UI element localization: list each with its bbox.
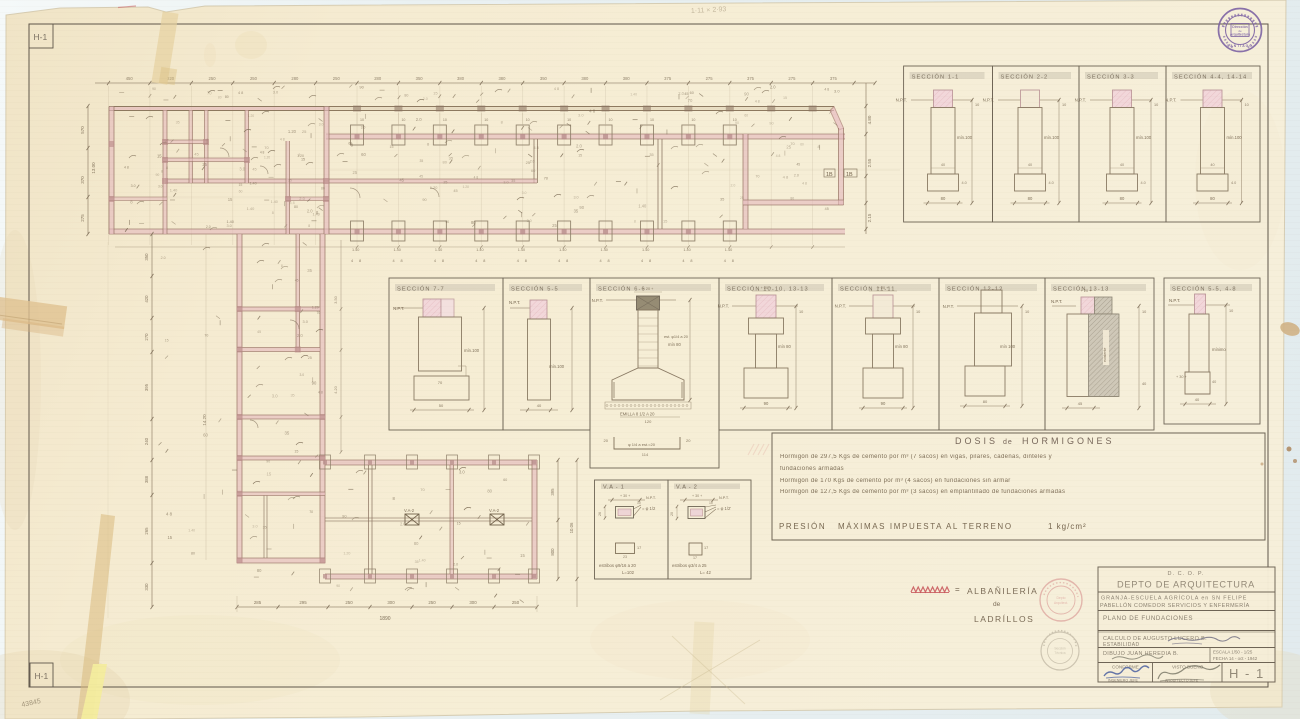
svg-text:fundaciones armadas: fundaciones armadas (780, 466, 844, 472)
svg-text:MÁXIMAS IMPUESTA AL TERRENO: MÁXIMAS IMPUESTA AL TERRENO (838, 522, 1013, 531)
svg-text:10: 10 (1245, 103, 1249, 107)
svg-text:4 8: 4 8 (280, 137, 285, 141)
svg-text:4.0: 4.0 (962, 181, 967, 185)
svg-text:Hormigón de 170 Kgs de cem: Hormigón de 170 Kgs de cemento por m³ (4… (780, 478, 1011, 484)
svg-text:INGENIERO JEFE: INGENIERO JEFE (1108, 679, 1139, 683)
svg-text:8: 8 (359, 259, 361, 263)
svg-text:1.40: 1.40 (476, 248, 483, 252)
svg-text:1.40: 1.40 (188, 528, 195, 532)
svg-text:8: 8 (817, 145, 819, 149)
svg-text:2.55: 2.55 (867, 158, 872, 167)
svg-text:15: 15 (520, 553, 525, 558)
svg-text:4: 4 (682, 259, 684, 263)
svg-text:26: 26 (598, 512, 602, 516)
svg-text:80: 80 (941, 196, 946, 201)
svg-text:17: 17 (704, 546, 708, 550)
svg-text:=: = (955, 585, 960, 594)
svg-text:350: 350 (416, 76, 424, 81)
svg-text:45: 45 (825, 207, 829, 211)
svg-text:N.P.T.: N.P.T. (592, 298, 603, 303)
svg-text:N.P.T.: N.P.T. (393, 306, 404, 311)
svg-text:Arquitectura: Arquitectura (1230, 33, 1250, 37)
svg-text:mín 80: mín 80 (668, 342, 681, 347)
svg-text:35: 35 (574, 209, 579, 214)
svg-text:4: 4 (517, 259, 519, 263)
svg-text:10: 10 (975, 103, 979, 107)
svg-text:2.0: 2.0 (307, 208, 313, 213)
svg-text:8: 8 (308, 224, 310, 228)
svg-text:20: 20 (670, 512, 674, 516)
svg-text:1.40: 1.40 (559, 248, 566, 252)
svg-text:450: 450 (126, 76, 134, 81)
svg-text:90: 90 (359, 85, 364, 90)
svg-text:15: 15 (783, 96, 787, 100)
svg-text:10: 10 (691, 118, 695, 122)
svg-text:mín.100: mín.100 (1136, 135, 1152, 140)
svg-text:2.0: 2.0 (576, 143, 583, 148)
svg-text:20: 20 (604, 438, 609, 443)
svg-text:250: 250 (345, 600, 353, 605)
svg-text:80: 80 (225, 95, 229, 99)
svg-text:4 8: 4 8 (802, 182, 807, 186)
svg-text:90: 90 (155, 173, 159, 177)
svg-text:3.0: 3.0 (158, 185, 163, 189)
svg-text:45: 45 (1078, 401, 1083, 406)
svg-text:15: 15 (663, 219, 668, 224)
svg-text:LADRÍLLOS: LADRÍLLOS (974, 614, 1034, 624)
svg-text:1.40: 1.40 (638, 203, 647, 208)
svg-text:35: 35 (649, 153, 653, 157)
svg-text:4 8: 4 8 (260, 150, 265, 154)
svg-text:8: 8 (732, 259, 734, 263)
svg-text:35: 35 (290, 394, 294, 398)
svg-text:4.0: 4.0 (1049, 181, 1054, 185)
svg-text:4 8: 4 8 (124, 166, 129, 170)
svg-text:375: 375 (664, 76, 672, 81)
svg-text:3.0: 3.0 (573, 195, 578, 199)
svg-text:375: 375 (830, 76, 838, 81)
svg-text:40: 40 (1210, 163, 1214, 167)
svg-text:15: 15 (301, 157, 305, 161)
svg-text:+ 30 +: + 30 + (692, 494, 702, 498)
svg-text:L= 42: L= 42 (700, 570, 711, 575)
svg-text:4 8: 4 8 (589, 108, 596, 113)
svg-text:PRESIÓN: PRESIÓN (779, 522, 826, 531)
svg-text:H-1: H-1 (34, 32, 48, 42)
svg-text:N.P.T.: N.P.T. (1169, 298, 1180, 303)
svg-text:250: 250 (250, 76, 258, 81)
svg-text:300: 300 (387, 600, 395, 605)
svg-text:10: 10 (360, 118, 364, 122)
svg-text:de: de (993, 601, 1001, 608)
svg-text:EMILLA 8 1/2 A 20: EMILLA 8 1/2 A 20 (620, 412, 655, 417)
svg-text:60: 60 (690, 91, 694, 95)
svg-text:1.20: 1.20 (312, 305, 319, 309)
svg-text:80: 80 (404, 94, 408, 98)
svg-text:25: 25 (786, 144, 791, 149)
svg-text:70: 70 (544, 176, 548, 181)
svg-text:N.P.T.: N.P.T. (983, 98, 994, 103)
svg-text:FECHA 14 - oct - 1942: FECHA 14 - oct - 1942 (1213, 656, 1258, 661)
svg-text:4: 4 (558, 259, 560, 263)
svg-text:370: 370 (80, 176, 85, 184)
svg-text:1B: 1B (846, 172, 853, 178)
svg-text:2.0: 2.0 (297, 333, 304, 338)
svg-text:90: 90 (769, 121, 773, 126)
svg-text:SECCIÓN 2-2: SECCIÓN 2-2 (1001, 74, 1049, 81)
svg-text:25: 25 (202, 162, 207, 167)
svg-text:40: 40 (1120, 163, 1124, 167)
svg-text:mín.100: mín.100 (549, 364, 565, 369)
svg-text:estribos φ3/4 a 25: estribos φ3/4 a 25 (672, 563, 707, 568)
svg-text:350: 350 (144, 253, 149, 261)
svg-text:1.40: 1.40 (518, 248, 525, 252)
svg-text:4: 4 (724, 259, 726, 263)
svg-text:4: 4 (475, 259, 477, 263)
svg-text:330: 330 (144, 583, 149, 591)
svg-text:2.0: 2.0 (453, 563, 458, 567)
svg-text:3.0: 3.0 (272, 394, 279, 399)
svg-text:40: 40 (1142, 382, 1146, 386)
svg-text:GRANJA-ESCUELA AGRÍCOLA en: GRANJA-ESCUELA AGRÍCOLA en SN FELIPE (1101, 595, 1247, 602)
svg-text:N.P.T.: N.P.T. (835, 304, 846, 309)
svg-text:90: 90 (579, 205, 584, 210)
svg-text:HORMIGONES: HORMIGONES (1022, 436, 1115, 446)
svg-text:V.A-2: V.A-2 (404, 508, 415, 513)
svg-text:35: 35 (288, 179, 292, 183)
svg-text:4: 4 (600, 259, 602, 263)
svg-text:= φ 1/2: = φ 1/2 (642, 506, 656, 511)
svg-text:1.40: 1.40 (683, 248, 690, 252)
svg-text:+ 30 +: + 30 + (1176, 375, 1188, 379)
svg-text:90: 90 (336, 584, 340, 588)
svg-text:40: 40 (1212, 380, 1216, 384)
svg-text:90: 90 (152, 87, 156, 91)
svg-text:15: 15 (228, 197, 233, 202)
svg-text:10: 10 (1229, 309, 1233, 313)
svg-text:1.40: 1.40 (601, 248, 608, 252)
svg-text:375: 375 (747, 76, 755, 81)
svg-text:4 8: 4 8 (318, 391, 323, 395)
svg-text:SECCIÓN 3-3: SECCIÓN 3-3 (1087, 74, 1135, 81)
svg-text:1.40: 1.40 (271, 200, 278, 204)
svg-text:V.A - 2: V.A - 2 (676, 485, 698, 491)
svg-text:4.20: 4.20 (334, 386, 338, 393)
svg-text:80: 80 (321, 186, 325, 190)
svg-text:15: 15 (578, 153, 582, 157)
svg-text:80: 80 (443, 159, 448, 164)
svg-text:2.0: 2.0 (206, 225, 211, 229)
svg-text:SECCIÓN 5-5, 4-8: SECCIÓN 5-5, 4-8 (1172, 286, 1237, 293)
svg-text:25: 25 (443, 180, 447, 184)
svg-text:ALBAÑILERÍA: ALBAÑILERÍA (967, 586, 1038, 596)
svg-text:270: 270 (144, 333, 149, 341)
svg-text:1.40: 1.40 (725, 248, 732, 252)
svg-text:45: 45 (194, 152, 199, 157)
svg-text:15: 15 (165, 338, 169, 342)
svg-text:280: 280 (291, 76, 299, 81)
svg-text:10: 10 (1025, 310, 1029, 314)
svg-text:8: 8 (608, 259, 610, 263)
svg-text:35: 35 (511, 179, 515, 183)
svg-text:4 8: 4 8 (166, 512, 173, 517)
svg-text:L=102: L=102 (622, 570, 635, 575)
svg-text:8: 8 (400, 259, 402, 263)
svg-text:10: 10 (401, 118, 405, 122)
svg-text:90: 90 (266, 459, 270, 463)
svg-text:275: 275 (788, 76, 796, 81)
svg-text:10: 10 (484, 118, 488, 122)
svg-text:mín 80: mín 80 (895, 344, 908, 349)
svg-text:8: 8 (166, 166, 168, 170)
svg-text:SECCIÓN 7-7: SECCIÓN 7-7 (397, 286, 445, 293)
svg-text:+ 20 +: + 20 + (761, 286, 773, 290)
svg-text:17: 17 (693, 556, 697, 560)
svg-text:3.0: 3.0 (459, 469, 465, 474)
svg-text:N.P.T.: N.P.T. (896, 98, 907, 103)
svg-text:300: 300 (469, 600, 477, 605)
svg-text:70: 70 (420, 487, 425, 492)
svg-text:1.20: 1.20 (264, 156, 270, 160)
svg-text:25: 25 (302, 129, 307, 134)
svg-text:80: 80 (191, 552, 195, 556)
svg-text:70: 70 (204, 334, 208, 338)
svg-text:1.20: 1.20 (343, 551, 350, 555)
svg-text:120: 120 (645, 419, 652, 424)
svg-text:35: 35 (449, 155, 454, 160)
svg-text:15: 15 (157, 153, 162, 158)
svg-text:45: 45 (399, 178, 404, 183)
svg-text:3.0: 3.0 (578, 113, 584, 118)
svg-text:35: 35 (176, 120, 180, 124)
svg-text:1.40: 1.40 (642, 248, 649, 252)
svg-text:45: 45 (419, 174, 423, 178)
svg-text:80: 80 (257, 568, 262, 573)
svg-text:= φ 1/2': = φ 1/2' (717, 506, 731, 511)
svg-text:285: 285 (254, 600, 262, 605)
svg-text:380: 380 (457, 76, 465, 81)
svg-text:15: 15 (390, 145, 394, 149)
svg-text:2.0: 2.0 (423, 97, 428, 101)
svg-text:80: 80 (487, 489, 492, 494)
svg-text:1.40: 1.40 (170, 188, 178, 193)
svg-text:N.P.T.: N.P.T. (1075, 98, 1086, 103)
svg-text:4 8: 4 8 (824, 88, 829, 92)
svg-text:estribos φ9/16 a 20: estribos φ9/16 a 20 (599, 563, 637, 568)
svg-text:Arquitect.: Arquitect. (1054, 601, 1068, 605)
svg-text:40: 40 (537, 403, 542, 408)
svg-text:3.0: 3.0 (522, 191, 527, 195)
svg-text:15: 15 (238, 183, 242, 187)
svg-text:15: 15 (457, 522, 461, 526)
svg-text:1.40: 1.40 (393, 248, 400, 252)
svg-text:25: 25 (740, 196, 744, 200)
svg-text:388: 388 (144, 475, 149, 483)
svg-text:1 kg/cm²: 1 kg/cm² (1048, 522, 1087, 531)
svg-text:3.0: 3.0 (319, 122, 324, 126)
svg-text:1.40: 1.40 (226, 220, 233, 224)
svg-text:25: 25 (353, 170, 358, 175)
svg-text:570: 570 (80, 126, 85, 134)
svg-text:1.20: 1.20 (248, 114, 255, 118)
svg-text:3.0: 3.0 (273, 89, 279, 94)
svg-text:265: 265 (144, 527, 149, 535)
svg-text:N.P.T.: N.P.T. (1051, 299, 1062, 304)
svg-text:+ 20 +: + 20 + (1081, 289, 1093, 293)
svg-text:4.80: 4.80 (867, 115, 872, 124)
svg-text:295: 295 (299, 600, 307, 605)
svg-text:275: 275 (80, 214, 85, 222)
svg-text:90: 90 (881, 401, 886, 406)
svg-text:90: 90 (744, 91, 749, 96)
svg-text:10: 10 (526, 118, 530, 122)
svg-text:est. φ1/4 a 20: est. φ1/4 a 20 (664, 334, 689, 339)
svg-text:H-1: H-1 (35, 671, 49, 681)
svg-text:2.0: 2.0 (530, 159, 535, 163)
svg-text:SECCIÓN 5-5: SECCIÓN 5-5 (511, 286, 559, 293)
svg-text:+ 20 +: + 20 + (643, 287, 655, 291)
svg-text:250: 250 (333, 76, 341, 81)
svg-text:3.0: 3.0 (834, 89, 840, 94)
svg-text:395: 395 (550, 488, 555, 496)
svg-text:10: 10 (567, 118, 571, 122)
svg-text:4 8: 4 8 (776, 154, 781, 158)
svg-text:80: 80 (414, 541, 419, 546)
svg-text:35: 35 (720, 197, 725, 202)
svg-text:70: 70 (756, 174, 760, 178)
svg-text:10: 10 (709, 501, 713, 505)
svg-text:8: 8 (483, 259, 485, 263)
svg-text:70: 70 (317, 311, 321, 315)
svg-text:2.0: 2.0 (730, 184, 735, 188)
svg-text:70: 70 (688, 98, 693, 103)
svg-text:2.0: 2.0 (400, 521, 406, 526)
svg-text:4: 4 (351, 259, 353, 263)
svg-text:45: 45 (453, 188, 457, 193)
svg-text:90: 90 (446, 220, 450, 224)
svg-text:80: 80 (218, 96, 222, 100)
svg-text:10: 10 (443, 118, 447, 122)
svg-text:1.20: 1.20 (297, 154, 304, 158)
svg-text:1890: 1890 (379, 616, 390, 622)
svg-text:8: 8 (566, 259, 568, 263)
svg-text:15: 15 (167, 535, 172, 540)
svg-text:45: 45 (257, 330, 261, 334)
svg-text:4 8: 4 8 (554, 87, 559, 91)
svg-text:2.0: 2.0 (299, 196, 305, 201)
svg-text:10: 10 (1062, 103, 1066, 107)
svg-text:10: 10 (916, 310, 920, 314)
svg-text:10: 10 (637, 501, 641, 505)
svg-text:60: 60 (203, 433, 208, 438)
svg-text:4 8: 4 8 (533, 146, 538, 150)
svg-text:8: 8 (649, 259, 651, 263)
svg-text:Técnica: Técnica (1054, 651, 1065, 655)
svg-text:80: 80 (790, 196, 794, 200)
svg-text:90: 90 (735, 121, 739, 125)
svg-text:250: 250 (512, 600, 520, 605)
svg-text:15: 15 (267, 472, 272, 477)
svg-text:PABELLÓN COMEDOR SERVICIOS Y: PABELLÓN COMEDOR SERVICIOS Y ENFERMERÍA (1100, 602, 1250, 609)
svg-text:mín.100: mín.100 (957, 135, 973, 140)
svg-text:380: 380 (581, 76, 589, 81)
svg-text:V.A-2: V.A-2 (489, 508, 500, 513)
svg-text:420: 420 (144, 295, 149, 303)
svg-text:N.P.T.: N.P.T. (509, 300, 520, 305)
svg-text:10.06: 10.06 (569, 522, 574, 533)
svg-text:8: 8 (272, 211, 274, 215)
svg-text:φ 1/4 a est.=20: φ 1/4 a est.=20 (628, 442, 656, 447)
svg-text:DEPTO DE ARQUITECTURA: DEPTO DE ARQUITECTURA (1117, 580, 1255, 590)
svg-text:45: 45 (796, 162, 800, 166)
svg-text:H - 1: H - 1 (1229, 666, 1265, 681)
svg-text:10: 10 (1142, 310, 1146, 314)
svg-text:2.15: 2.15 (867, 213, 872, 222)
svg-text:10: 10 (799, 310, 803, 314)
svg-text:80: 80 (1120, 196, 1125, 201)
svg-text:250: 250 (209, 76, 217, 81)
svg-text:25: 25 (308, 356, 312, 360)
svg-text:10: 10 (609, 118, 613, 122)
svg-text:ARQUITECTO JEFE: ARQUITECTO JEFE (1165, 679, 1199, 683)
svg-text:4.0: 4.0 (1141, 181, 1146, 185)
svg-text:90: 90 (312, 381, 317, 386)
svg-text:4: 4 (641, 259, 643, 263)
svg-text:existente: existente (1103, 348, 1107, 362)
svg-text:40: 40 (1028, 163, 1032, 167)
svg-text:395: 395 (144, 383, 149, 391)
svg-text:35: 35 (415, 560, 419, 564)
svg-text:Depto: Depto (1056, 596, 1065, 600)
svg-text:275: 275 (706, 76, 714, 81)
svg-text:2.0: 2.0 (794, 173, 799, 177)
svg-text:20: 20 (686, 438, 691, 443)
svg-text:60: 60 (361, 152, 366, 157)
svg-text:CONFORME: CONFORME (1112, 665, 1139, 670)
svg-text:N.P.T.: N.P.T. (718, 304, 729, 309)
svg-text:8: 8 (525, 259, 527, 263)
svg-text:1.40: 1.40 (419, 558, 426, 562)
svg-text:90: 90 (764, 401, 769, 406)
svg-text:+ 20 +: + 20 + (878, 286, 890, 290)
svg-text:4: 4 (392, 259, 394, 263)
svg-text:PLANO DE FUNDACIONES: PLANO DE FUNDACIONES (1103, 615, 1193, 622)
svg-text:10: 10 (1154, 103, 1158, 107)
svg-text:1B: 1B (826, 172, 833, 178)
svg-text:N.P.T.: N.P.T. (1165, 98, 1176, 103)
svg-text:35: 35 (284, 430, 289, 435)
svg-text:35: 35 (307, 268, 312, 273)
svg-text:2.0: 2.0 (161, 256, 166, 260)
svg-text:1.40: 1.40 (630, 92, 637, 96)
svg-text:Sección: Sección (1054, 647, 1066, 651)
svg-text:N.P.T.: N.P.T. (943, 304, 954, 309)
svg-text:1.20: 1.20 (462, 185, 469, 189)
svg-text:60: 60 (503, 478, 507, 482)
svg-text:13.00: 13.00 (91, 162, 96, 174)
svg-text:80: 80 (471, 220, 476, 225)
svg-text:25: 25 (552, 223, 557, 228)
svg-text:V.A - 1: V.A - 1 (603, 485, 625, 491)
svg-text:3.0: 3.0 (239, 167, 245, 172)
svg-text:N.P.T.: N.P.T. (719, 496, 729, 500)
svg-text:4 8: 4 8 (238, 90, 243, 95)
svg-text:mín 100: mín 100 (1000, 344, 1016, 349)
svg-text:40: 40 (941, 163, 945, 167)
svg-text:4 8: 4 8 (783, 174, 789, 179)
svg-text:1.40: 1.40 (352, 248, 359, 252)
svg-text:8: 8 (442, 259, 444, 263)
